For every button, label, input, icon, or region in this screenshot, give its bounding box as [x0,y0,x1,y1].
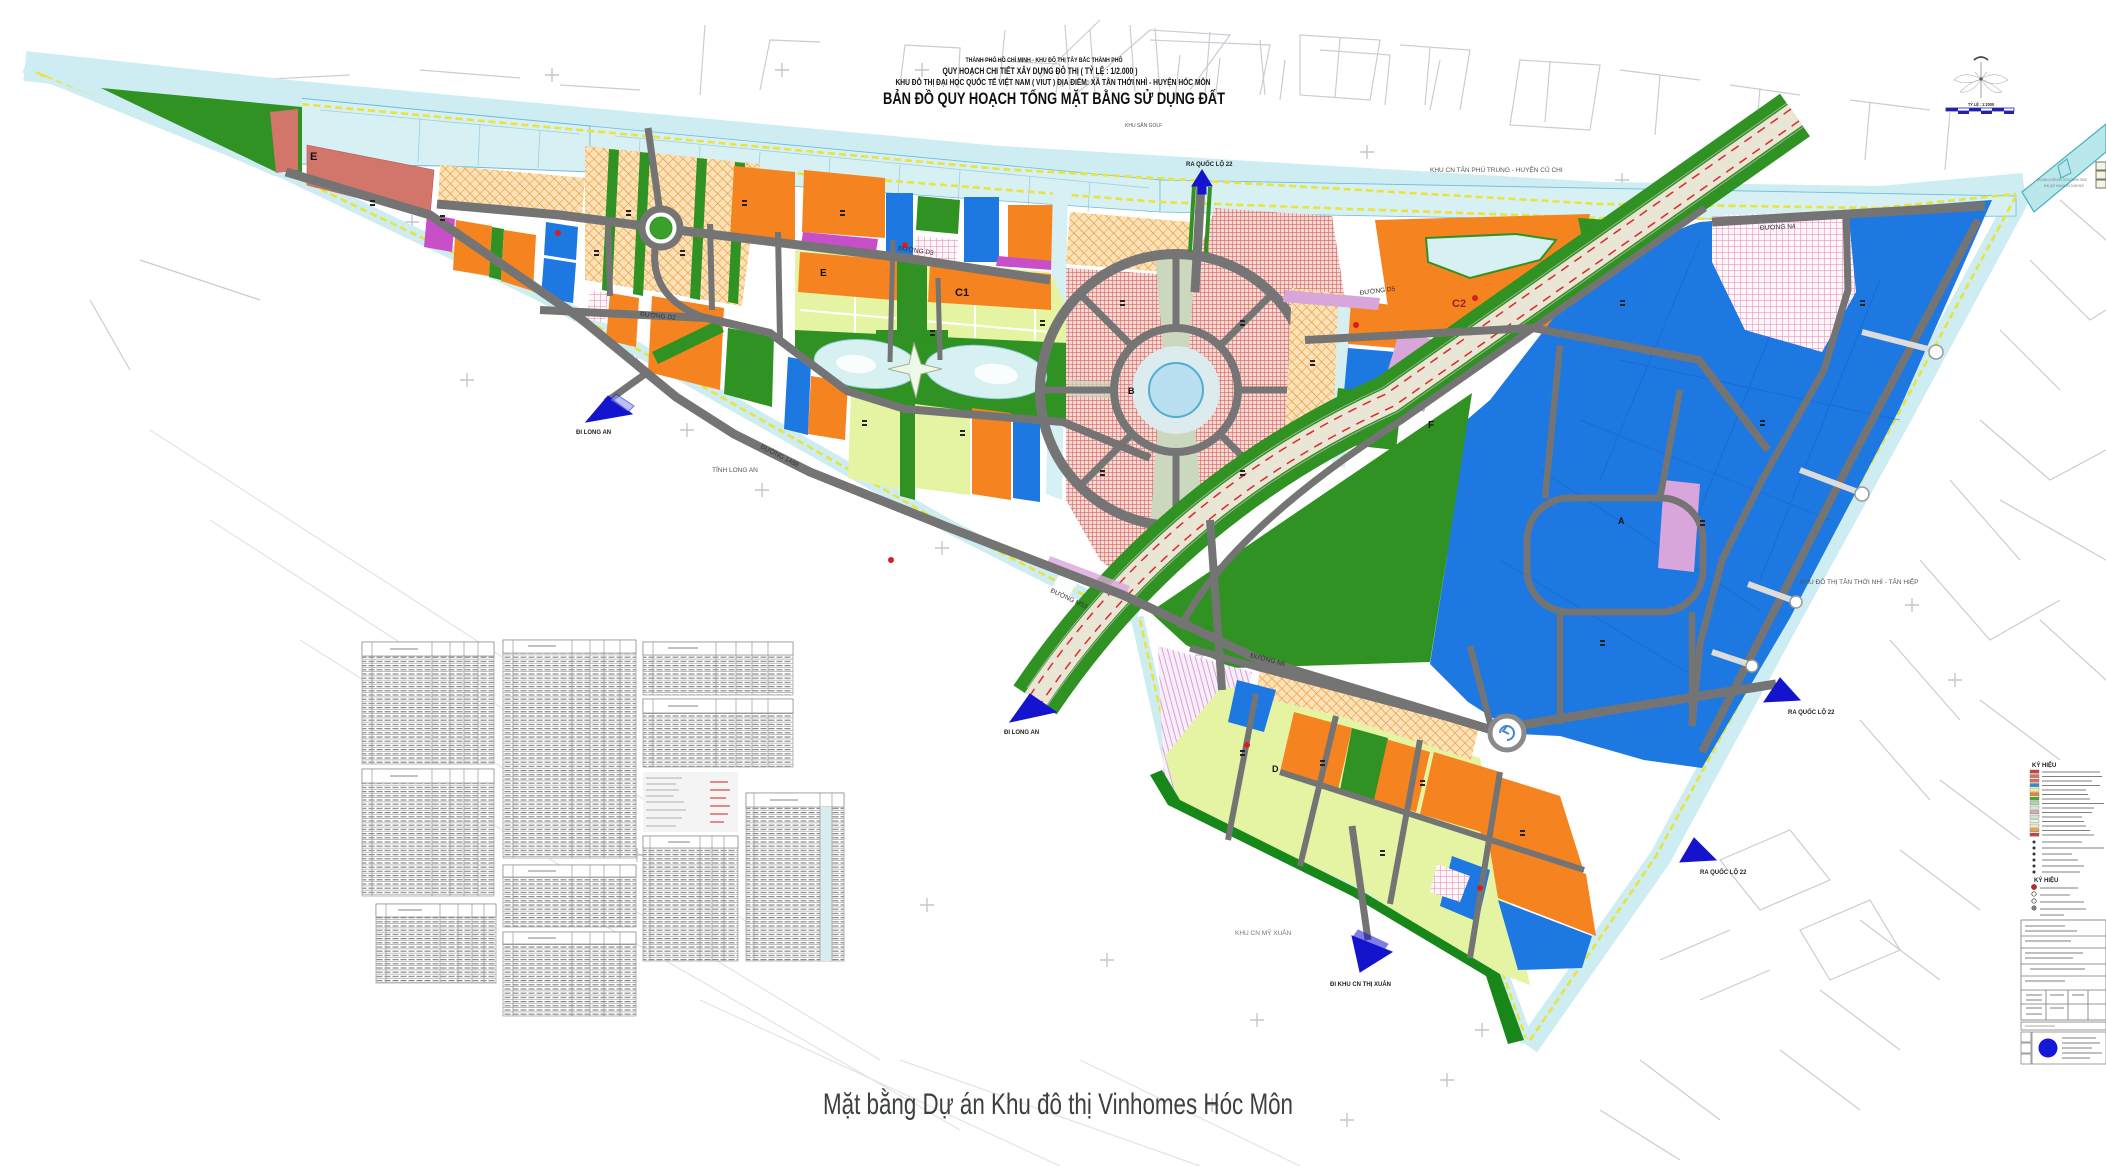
svg-text:KÝ HIỆU: KÝ HIỆU [2032,761,2056,769]
svg-text:F: F [1428,420,1434,431]
svg-text:E: E [310,151,317,163]
svg-text:KHU ĐÔ THỊ ĐẠI HỌC QUỐC TẾ VIỆ: KHU ĐÔ THỊ ĐẠI HỌC QUỐC TẾ VIỆT NAM ( VI… [896,77,1211,87]
svg-text:KHU ĐÔ THỊ TÂN THỚI NHÌ - TÂN: KHU ĐÔ THỊ TÂN THỚI NHÌ - TÂN HIỆP [1800,577,1919,586]
svg-text:D: D [1272,764,1279,774]
svg-text:BẢN ĐỒ QUY HOẠCH TỔNG MẶT BẰNG: BẢN ĐỒ QUY HOẠCH TỔNG MẶT BẰNG SỬ DỤNG Đ… [883,89,1225,108]
svg-text:KÝ HIỆU: KÝ HIỆU [2034,876,2058,884]
svg-text:A: A [1618,516,1625,526]
svg-text:C1: C1 [955,287,969,299]
svg-text:KHU CN MỸ XUÂN: KHU CN MỸ XUÂN [1235,928,1292,937]
svg-text:C2: C2 [1452,298,1466,310]
svg-text:KHU DÂN CƯ HIỆN HỮU CẢI TẠO CH: KHU DÂN CƯ HIỆN HỮU CẢI TẠO CHỈNH TRANG [2037,177,2087,182]
svg-text:RA QUỐC LỘ 22: RA QUỐC LỘ 22 [1788,708,1835,716]
svg-text:RA QUỐC LỘ 22: RA QUỐC LỘ 22 [1700,868,1747,876]
svg-text:B: B [1128,386,1135,396]
svg-text:ĐI KHU CN THỊ XUÂN: ĐI KHU CN THỊ XUÂN [1330,981,1391,988]
svg-text:KHU QUY HOẠCH XÂY DỰNG MỚI: KHU QUY HOẠCH XÂY DỰNG MỚI [2044,183,2084,188]
svg-text:TỶ LỆ : 1:2000: TỶ LỆ : 1:2000 [1968,100,1994,107]
svg-text:RA QUỐC LỘ 22: RA QUỐC LỘ 22 [1186,160,1233,168]
svg-text:TỈNH LONG AN: TỈNH LONG AN [712,465,758,474]
svg-text:ĐI LONG AN: ĐI LONG AN [1004,730,1039,736]
svg-text:ĐI LONG AN: ĐI LONG AN [576,430,611,436]
svg-text:QUY HOẠCH CHI TIẾT XÂY DỰNG ĐÔ: QUY HOẠCH CHI TIẾT XÂY DỰNG ĐÔ THỊ ( TỶ … [943,65,1138,77]
svg-text:KHU SÂN GOLF: KHU SÂN GOLF [1125,122,1162,129]
svg-text:Mặt bằng Dự án Khu đô thị Vinh: Mặt bằng Dự án Khu đô thị Vinhomes Hóc M… [823,1088,1293,1121]
svg-text:E: E [820,268,827,279]
svg-text:KHU CN TÂN PHÚ TRUNG - HUYỆN C: KHU CN TÂN PHÚ TRUNG - HUYỆN CỦ CHI [1430,165,1563,174]
